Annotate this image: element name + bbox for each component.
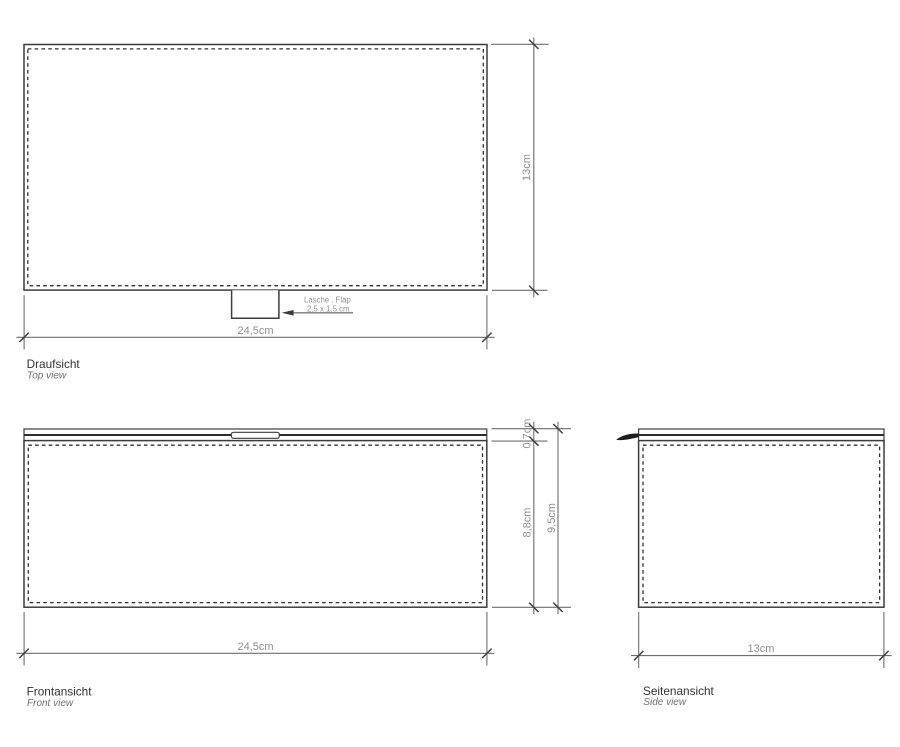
svg-text:8,8cm: 8,8cm [522, 508, 534, 538]
svg-text:Frontansicht: Frontansicht [27, 685, 93, 699]
svg-text:Seitenansicht: Seitenansicht [643, 684, 715, 698]
svg-text:24,5cm: 24,5cm [237, 325, 273, 337]
svg-text:24,5cm: 24,5cm [237, 641, 273, 653]
svg-text:0,7cm: 0,7cm [522, 419, 534, 449]
svg-text:Draufsicht: Draufsicht [27, 357, 81, 371]
svg-text:Side view: Side view [643, 697, 687, 708]
svg-text:Lasche . Flap: Lasche . Flap [304, 296, 351, 305]
svg-text:13cm: 13cm [748, 643, 775, 655]
svg-text:9,5cm: 9,5cm [546, 503, 558, 533]
svg-text:13cm: 13cm [521, 154, 533, 181]
svg-text:Front view: Front view [27, 698, 74, 709]
svg-text:Top view: Top view [27, 371, 67, 382]
